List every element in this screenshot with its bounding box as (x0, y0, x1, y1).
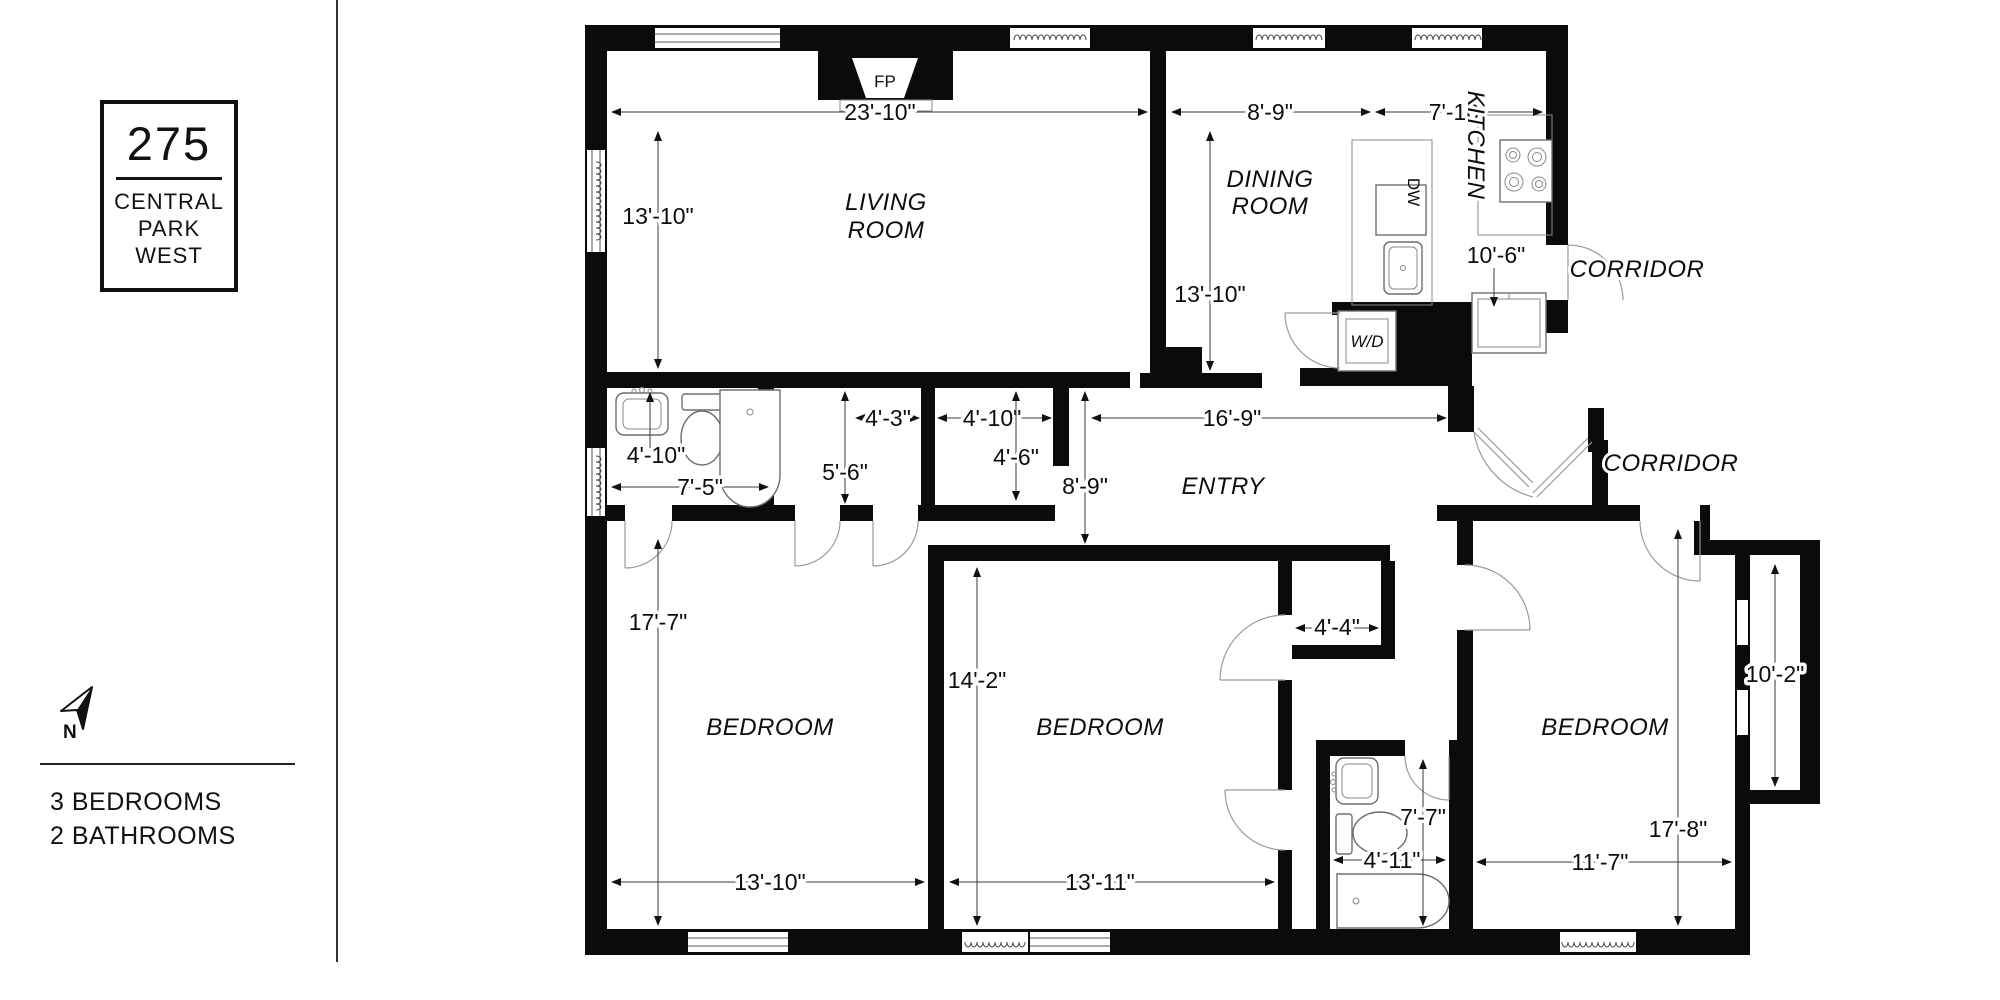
svg-text:10'-6": 10'-6" (1467, 242, 1526, 268)
svg-text:4'-3": 4'-3" (865, 405, 911, 431)
dim-entry-width: 16'-9" (1092, 405, 1446, 431)
refrigerator (1472, 293, 1546, 353)
dishwasher-label: DW (1404, 178, 1423, 206)
svg-text:4'-6": 4'-6" (993, 444, 1039, 470)
svg-text:4'-10": 4'-10" (627, 442, 686, 468)
svg-text:8'-9": 8'-9" (1062, 473, 1108, 499)
dim-living-width: 23'-10" (612, 99, 1147, 125)
svg-text:11'-7": 11'-7" (1572, 849, 1629, 875)
bath1-tub (720, 390, 780, 507)
bedroom-right-label: BEDROOM (1541, 714, 1669, 741)
bathroom-2-fixtures (1331, 758, 1450, 928)
svg-text:13'-10": 13'-10" (622, 203, 693, 229)
svg-text:7'-7": 7'-7" (1400, 804, 1446, 830)
bath2-tub (1337, 874, 1449, 928)
svg-text:13'-11": 13'-11" (1065, 869, 1135, 895)
washer-dryer-label: W/D (1350, 332, 1383, 351)
svg-text:4'-10": 4'-10" (963, 405, 1022, 431)
fireplace-label: FP (874, 72, 896, 91)
entry-label: ENTRY (1182, 473, 1266, 500)
svg-text:4'-4": 4'-4" (1314, 614, 1360, 640)
bath1-toilet (681, 394, 723, 465)
dining-room-label-1: DINING (1227, 166, 1314, 193)
dim-bedroom-middle-width: 13'-11" (950, 869, 1274, 895)
dim-dining-width: 8'-9" (1172, 99, 1370, 125)
dim-bedroom-left-depth: 17'-7" (629, 540, 688, 925)
corridor-lower-label: CORRIDOR (1604, 450, 1739, 477)
svg-text:23'-10": 23'-10" (844, 99, 915, 125)
bedroom-left-label: BEDROOM (706, 714, 834, 741)
dim-alcove-depth: 10'-2" (1746, 565, 1805, 786)
dim-bedroom-left-width: 13'-10" (612, 869, 924, 895)
svg-text:4'-11": 4'-11" (1364, 847, 1421, 873)
bedroom-middle-label: BEDROOM (1036, 714, 1164, 741)
living-room-label-1: LIVING (845, 189, 927, 216)
svg-text:16'-9": 16'-9" (1203, 405, 1262, 431)
dining-room-label-2: ROOM (1232, 193, 1309, 220)
svg-text:13'-10": 13'-10" (734, 869, 805, 895)
floor-plan: FP DW W/D (0, 0, 2000, 1000)
dim-bedroom-right-width: 11'-7" (1477, 849, 1731, 875)
dim-closet-a-width: 4'-3" (856, 405, 919, 431)
svg-text:7'-5": 7'-5" (677, 474, 723, 500)
floorplan-page: { "sidebar": { "building_number": "275",… (0, 0, 2000, 1000)
dim-kitchen-width: 7'-10" (1376, 99, 1542, 125)
dim-closet-c-width: 4'-4" (1296, 614, 1378, 640)
svg-text:17'-7": 17'-7" (629, 609, 688, 635)
svg-text:8'-9": 8'-9" (1247, 99, 1293, 125)
washer-dryer: W/D (1338, 311, 1396, 371)
svg-text:17'-8": 17'-8" (1649, 816, 1708, 842)
kitchen-label: KITCHEN (1462, 91, 1489, 200)
dim-closet-b-width: 4'-10" (938, 405, 1051, 431)
svg-text:5'-6": 5'-6" (822, 459, 868, 485)
svg-text:13'-10": 13'-10" (1174, 281, 1245, 307)
svg-text:14'-2": 14'-2" (948, 667, 1007, 693)
dim-bedroom-middle-depth: 14'-2" (948, 568, 1007, 925)
svg-text:10'-2": 10'-2" (1746, 661, 1805, 687)
corridor-upper-label: CORRIDOR (1570, 256, 1705, 283)
living-room-label-2: ROOM (848, 217, 925, 244)
dim-living-depth: 13'-10" (622, 132, 693, 368)
kitchen-island: DW (1352, 140, 1432, 305)
dim-closet-a-depth: 5'-6" (822, 392, 868, 503)
